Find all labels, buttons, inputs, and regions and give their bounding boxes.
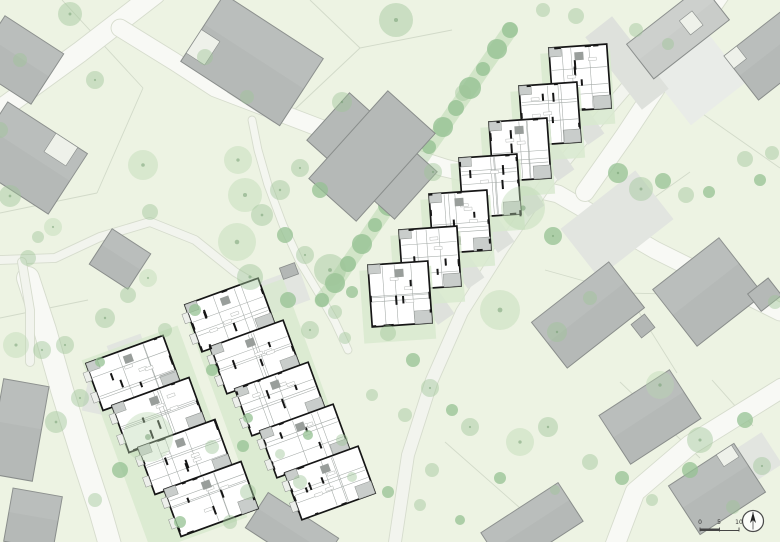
tree [678, 187, 694, 203]
tree [629, 23, 643, 37]
tree [142, 204, 158, 220]
tree [336, 434, 348, 446]
tree [20, 250, 36, 266]
tree [174, 516, 186, 528]
tree [726, 500, 740, 514]
tree [646, 494, 658, 506]
hedge-shrub [448, 100, 464, 116]
tree [398, 408, 412, 422]
tree [446, 404, 458, 416]
hedge-shrub [433, 117, 453, 137]
tree [223, 515, 237, 529]
tree [550, 485, 560, 495]
tree [280, 292, 296, 308]
tree [737, 151, 753, 167]
tree [189, 304, 201, 316]
hedge-shrub [502, 22, 518, 38]
scale-tick-label-5: 5 [717, 520, 721, 526]
tree [312, 182, 328, 198]
tree [88, 493, 102, 507]
tree [703, 186, 715, 198]
tree [240, 484, 256, 500]
tree [414, 499, 426, 511]
tree [455, 85, 471, 101]
tree [158, 323, 172, 337]
tree [293, 475, 307, 489]
hedge-shrub [368, 218, 382, 232]
tree [382, 486, 394, 498]
tree [425, 463, 439, 477]
row-unit-7 [359, 261, 436, 344]
tree [380, 325, 396, 341]
tree [243, 413, 253, 423]
tree [655, 173, 671, 189]
tree [583, 291, 597, 305]
tree [32, 231, 44, 243]
tree [277, 227, 293, 243]
tree [95, 357, 105, 367]
tree [240, 90, 254, 104]
site-plan-drawing [0, 0, 780, 542]
tree [582, 454, 598, 470]
tree [13, 53, 27, 67]
tree [615, 471, 629, 485]
tree [568, 8, 584, 24]
tree [120, 287, 136, 303]
tree [237, 440, 249, 452]
tree [275, 449, 285, 459]
tree [406, 353, 420, 367]
hedge-shrub [476, 62, 490, 76]
tree [455, 515, 465, 525]
tree [206, 364, 218, 376]
hedge-shrub [315, 293, 329, 307]
tree [346, 286, 358, 298]
tree [662, 38, 674, 50]
tree [205, 440, 219, 454]
scale-tick-label-10: 10 [735, 520, 743, 526]
tree [339, 332, 351, 344]
hedge-shrub [352, 234, 372, 254]
hedge-shrub [487, 39, 507, 59]
tree [682, 462, 698, 478]
north-arrow-icon [743, 511, 764, 532]
tree [754, 174, 766, 186]
tree [536, 3, 550, 17]
tree [328, 305, 342, 319]
tree [737, 412, 753, 428]
tree [765, 146, 779, 160]
tree [303, 430, 313, 440]
tree [494, 472, 506, 484]
tree [347, 472, 357, 482]
neighbor-building [4, 488, 63, 542]
site-plan-canvas: 0 5 10 [0, 0, 780, 542]
tree [197, 49, 213, 65]
scale-tick-label-0: 0 [698, 520, 702, 526]
tree [366, 389, 378, 401]
tree [112, 462, 128, 478]
